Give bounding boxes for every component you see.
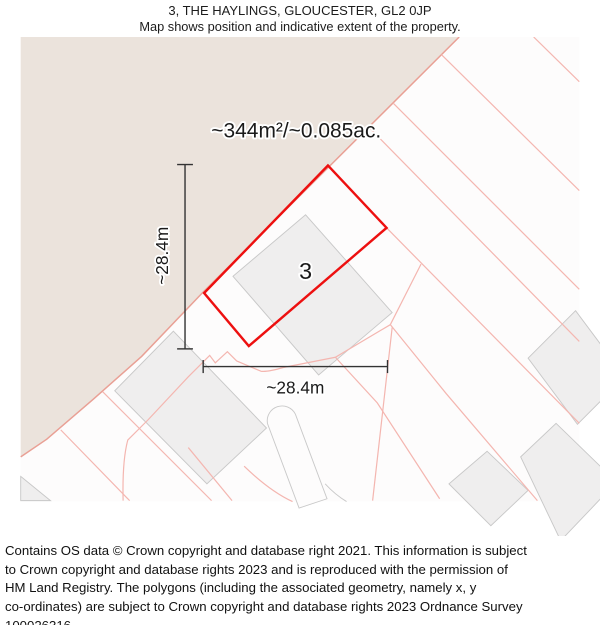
area-label: ~344m²/~0.085ac. [211, 120, 381, 143]
copyright-notice: Contains OS data © Crown copyright and d… [0, 536, 600, 625]
map-description-subtitle: Map shows position and indicative extent… [0, 19, 600, 34]
height-dimension-label: ~28.4m [152, 227, 172, 285]
map-canvas: ~344m²/~0.085ac. 3 ~28.4m ~28.4m [0, 37, 600, 536]
width-dimension-label: ~28.4m [266, 378, 324, 398]
plot-number-label: 3 [299, 258, 312, 284]
report-header: 3, THE HAYLINGS, GLOUCESTER, GL2 0JP Map… [0, 0, 600, 37]
ordnance-survey-map: ~344m²/~0.085ac. 3 ~28.4m ~28.4m [0, 37, 600, 536]
property-address-title: 3, THE HAYLINGS, GLOUCESTER, GL2 0JP [0, 0, 600, 19]
property-map-report: 3, THE HAYLINGS, GLOUCESTER, GL2 0JP Map… [0, 0, 600, 625]
